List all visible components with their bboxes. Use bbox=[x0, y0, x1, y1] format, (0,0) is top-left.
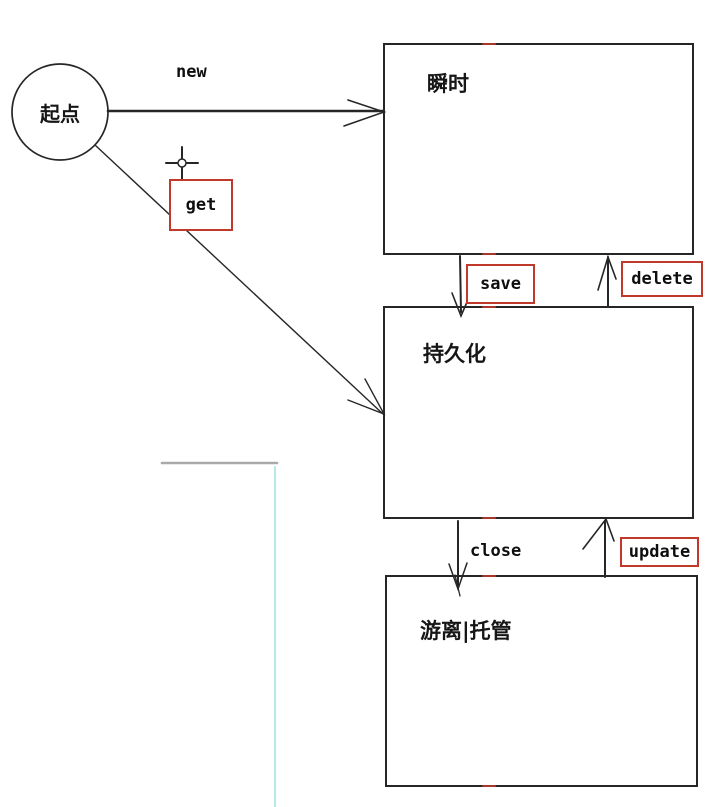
edge-get-arrow bbox=[95, 145, 384, 414]
diagram-canvas: 瞬时 持久化 游离|托管 起点 bbox=[0, 0, 726, 807]
edge-label-save: save bbox=[466, 264, 535, 304]
edge-label-close: close bbox=[470, 541, 521, 561]
edge-label-get: get bbox=[169, 179, 233, 231]
edge-delete-arrow bbox=[598, 257, 616, 306]
state-label-persistent: 持久化 bbox=[423, 338, 486, 368]
state-box-persistent: 持久化 bbox=[383, 306, 694, 519]
state-box-detached: 游离|托管 bbox=[385, 575, 698, 787]
state-label-detached: 游离|托管 bbox=[420, 615, 512, 645]
edge-label-update: update bbox=[620, 537, 699, 567]
edge-label-new: new bbox=[176, 62, 207, 82]
crosshair-cursor-icon bbox=[166, 147, 198, 179]
edge-new-arrow bbox=[108, 100, 384, 126]
state-label-transient: 瞬时 bbox=[427, 68, 469, 98]
edge-update-arrow bbox=[583, 519, 614, 577]
edge-label-delete: delete bbox=[621, 261, 703, 297]
state-box-transient: 瞬时 bbox=[383, 43, 694, 255]
start-node-label: 起点 bbox=[12, 98, 108, 127]
